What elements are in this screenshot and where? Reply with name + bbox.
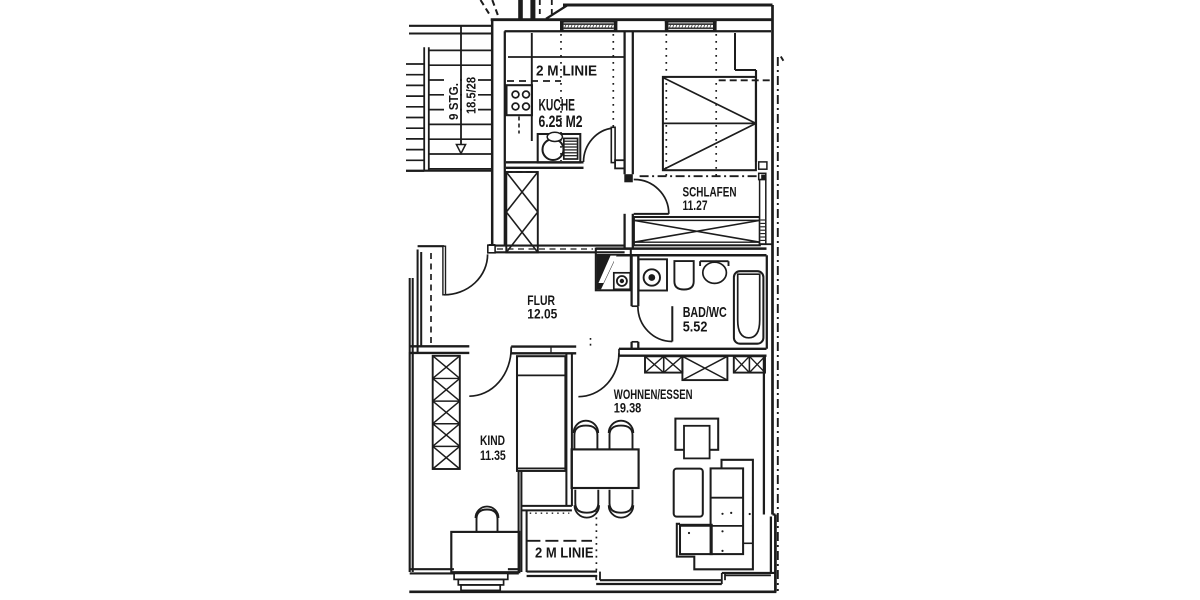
svg-text:11.27: 11.27	[683, 197, 708, 213]
svg-text:6.25 M2: 6.25 M2	[539, 113, 583, 131]
svg-text:9 STG.: 9 STG.	[447, 83, 461, 120]
svg-text:KIND: KIND	[480, 432, 505, 448]
svg-text:2 M LINIE: 2 M LINIE	[535, 545, 594, 562]
svg-text:5.52: 5.52	[683, 319, 708, 336]
svg-text:KUCHE: KUCHE	[539, 97, 576, 115]
svg-text:12.05: 12.05	[527, 305, 557, 321]
svg-text:2 M LINIE: 2 M LINIE	[536, 63, 597, 80]
svg-text:18.5/28: 18.5/28	[465, 77, 479, 114]
svg-text:19.38: 19.38	[614, 400, 642, 416]
svg-text:11.35: 11.35	[480, 447, 506, 463]
